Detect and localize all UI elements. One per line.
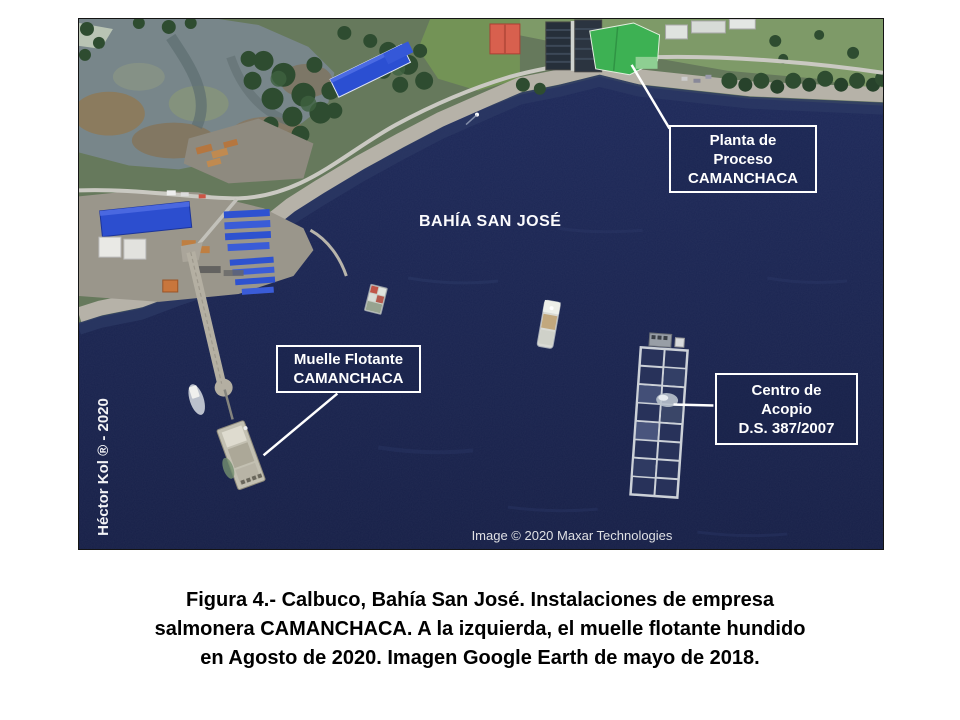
figure-caption: Figura 4.- Calbuco, Bahía San José. Inst… xyxy=(0,586,960,673)
annotation-centro-de-acopio: Centro de Acopio D.S. 387/2007 xyxy=(715,373,858,445)
fish-cage-grid xyxy=(631,332,689,497)
satellite-map xyxy=(79,19,883,549)
document-page: Planta de Proceso CAMANCHACA Muelle Flot… xyxy=(0,0,960,720)
annotation-planta-de-proceso: Planta de Proceso CAMANCHACA xyxy=(669,125,817,193)
author-credit-vertical: Héctor Kol ® - 2020 xyxy=(95,382,115,550)
satellite-figure: Planta de Proceso CAMANCHACA Muelle Flot… xyxy=(78,18,884,550)
centro-leader-line xyxy=(674,405,714,406)
annotation-muelle-flotante: Muelle Flotante CAMANCHACA xyxy=(276,345,421,393)
red-roof-building xyxy=(490,24,520,54)
bay-name-label: BAHÍA SAN JOSÉ xyxy=(419,213,561,231)
imagery-attribution: Image © 2020 Maxar Technologies xyxy=(412,528,732,543)
